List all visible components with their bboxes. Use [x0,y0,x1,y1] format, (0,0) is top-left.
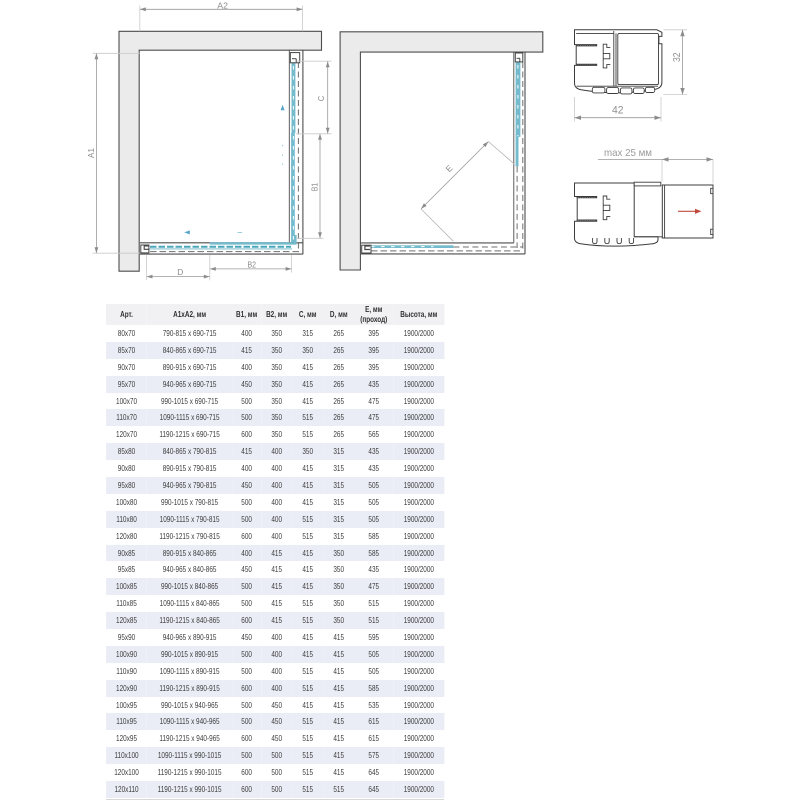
svg-text:max 25 мм: max 25 мм [604,147,652,159]
svg-text:B1: B1 [310,182,320,191]
svg-text:B2: B2 [248,259,257,269]
svg-text:D: D [177,267,183,277]
svg-text:C: C [316,96,326,102]
svg-text:A1: A1 [86,148,96,158]
svg-text:E: E [444,163,455,174]
svg-text:32: 32 [672,52,683,62]
svg-text:A2: A2 [217,1,228,11]
svg-text:42: 42 [612,105,624,117]
